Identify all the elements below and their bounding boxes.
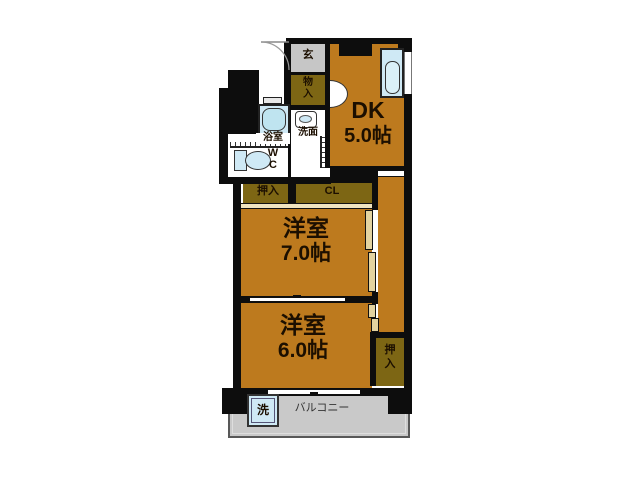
wall-segment: [370, 338, 376, 386]
sliding-door-right-lower: [368, 304, 376, 318]
wall-segment: [288, 180, 296, 204]
wall-segment: [339, 38, 372, 56]
closet-cl-label: CL: [320, 186, 344, 198]
wc-label-1: W: [266, 148, 280, 160]
door-tick: [310, 392, 318, 395]
storage-monoire-label-2: 入: [300, 90, 316, 101]
sliding-door-right-lower2: [371, 318, 379, 332]
floorplan-canvas: 洗 玄 物 入 DK 5.0帖 洗面 浴室 W C 押入 CL 洋室 7.0帖 …: [0, 0, 640, 480]
door-tick: [293, 295, 301, 298]
washstand-door-ticks-icon: [320, 136, 325, 168]
wall-segment: [219, 88, 228, 184]
balcony-pillar-left: [222, 388, 249, 414]
room-western7-label-1: 洋室: [280, 216, 332, 240]
wall-segment: [228, 70, 259, 134]
storage-monoire-label-1: 物: [300, 78, 316, 89]
bathtub-ledge-icon: [263, 97, 282, 104]
washstand-sink-icon: [295, 111, 317, 128]
sliding-door-right-upper: [365, 210, 373, 250]
entrance-door-swing-icon: [253, 36, 295, 74]
wall-segment: [372, 292, 378, 304]
closet-oshiire-left-label: 押入: [251, 186, 285, 198]
dk-strip-sliding-door: [378, 170, 404, 177]
wall-segment: [296, 177, 372, 183]
wall-segment: [233, 177, 241, 390]
washing-machine-label: 洗: [249, 404, 277, 417]
sliding-door-right-upper2: [368, 252, 376, 292]
washstand-label: 洗面: [292, 128, 324, 139]
closet-oshiire-right-label-2: 入: [383, 359, 397, 371]
room-dk-label-1: DK: [340, 98, 396, 122]
washstand-basin-icon: [299, 115, 312, 123]
kitchen-counter-icon: [380, 48, 404, 98]
wc-label-2: C: [266, 160, 280, 172]
room-western7-label-2: 7.0帖: [276, 243, 336, 265]
wall-segment: [291, 72, 325, 75]
bathroom-label: 浴室: [256, 133, 290, 144]
wall-segment: [404, 44, 412, 396]
closet-oshiire-right-label-1: 押: [383, 345, 397, 357]
corridor-strip-area: [378, 177, 404, 332]
balcony-pillar-right: [388, 388, 412, 414]
room-western6-label-1: 洋室: [277, 313, 329, 337]
bathtub-icon: [262, 108, 286, 131]
room-dk-label-2: 5.0帖: [330, 126, 406, 147]
bathtub-frame-icon: [258, 104, 290, 135]
wall-segment: [372, 177, 378, 210]
entry-genkan-label: 玄: [296, 50, 320, 62]
room-western6-label-2: 6.0帖: [273, 340, 333, 362]
balcony-label: バルコニー: [293, 403, 351, 415]
closet-sliding-door: [241, 203, 372, 209]
washing-machine-icon: 洗: [247, 394, 279, 427]
kitchen-sink-icon: [385, 61, 400, 94]
window-icon: [404, 52, 412, 94]
